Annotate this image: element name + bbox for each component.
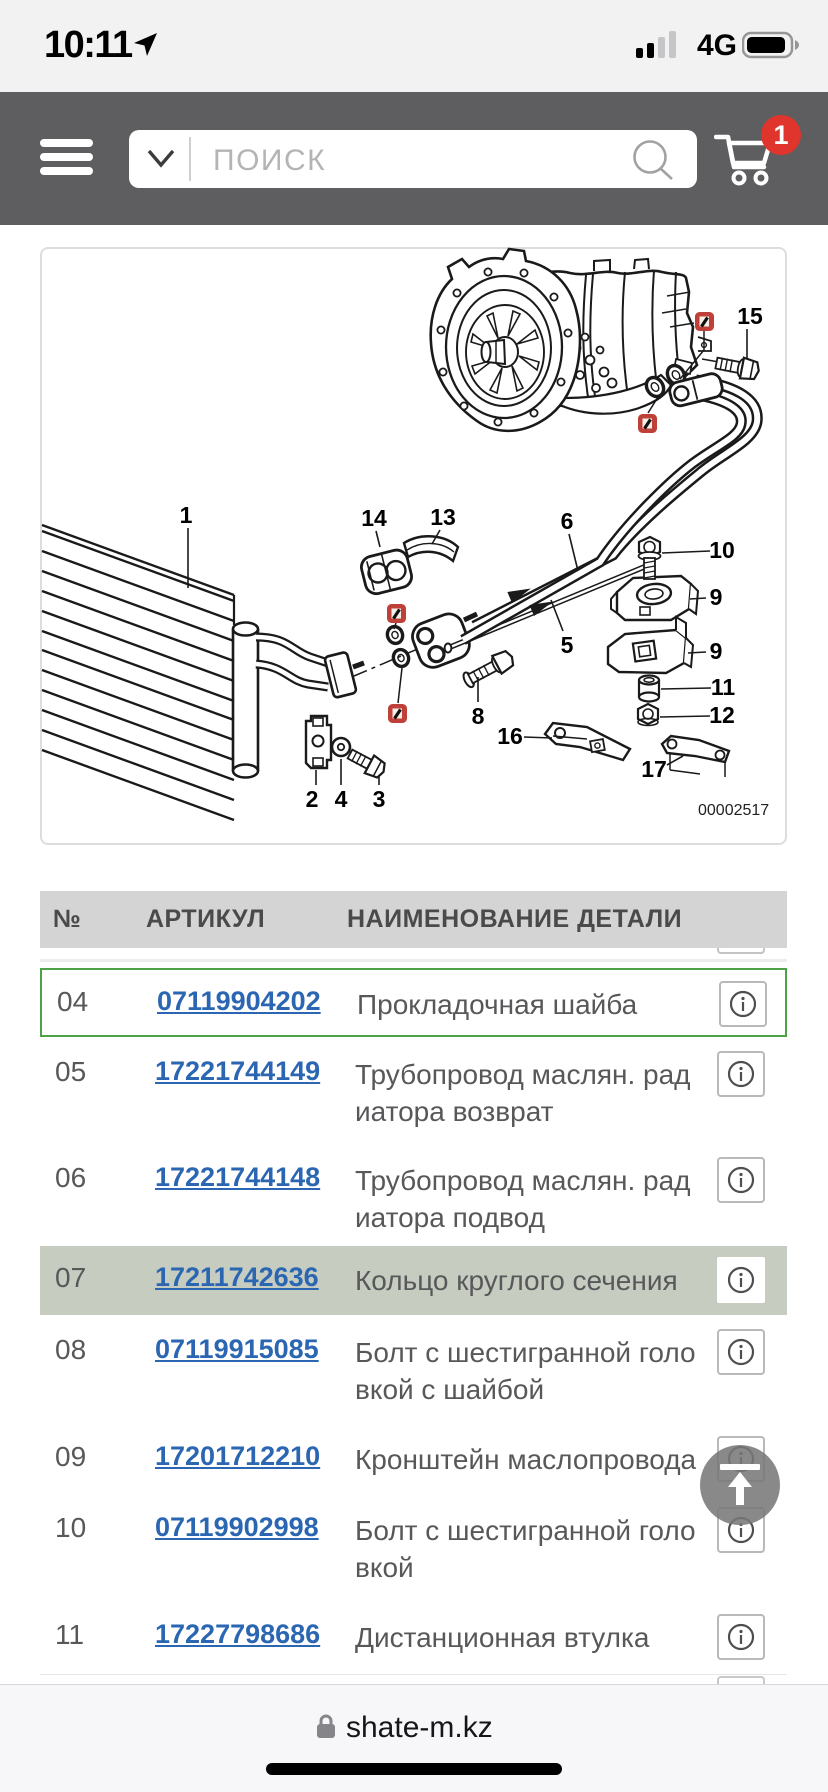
svg-text:16: 16 <box>497 723 523 749</box>
svg-text:9: 9 <box>710 638 723 664</box>
svg-text:10: 10 <box>709 537 735 563</box>
svg-text:5: 5 <box>561 632 574 658</box>
svg-text:14: 14 <box>361 505 387 531</box>
svg-text:4: 4 <box>335 786 348 812</box>
svg-text:1: 1 <box>180 502 193 528</box>
svg-text:8: 8 <box>472 703 485 729</box>
svg-text:6: 6 <box>561 508 574 534</box>
svg-text:15: 15 <box>737 303 763 329</box>
svg-text:9: 9 <box>710 584 723 610</box>
svg-text:13: 13 <box>430 504 456 530</box>
svg-text:3: 3 <box>373 786 386 812</box>
svg-text:12: 12 <box>709 702 735 728</box>
svg-text:00002517: 00002517 <box>698 802 769 819</box>
svg-text:17: 17 <box>641 756 667 782</box>
svg-text:2: 2 <box>306 786 319 812</box>
svg-text:11: 11 <box>711 674 736 700</box>
